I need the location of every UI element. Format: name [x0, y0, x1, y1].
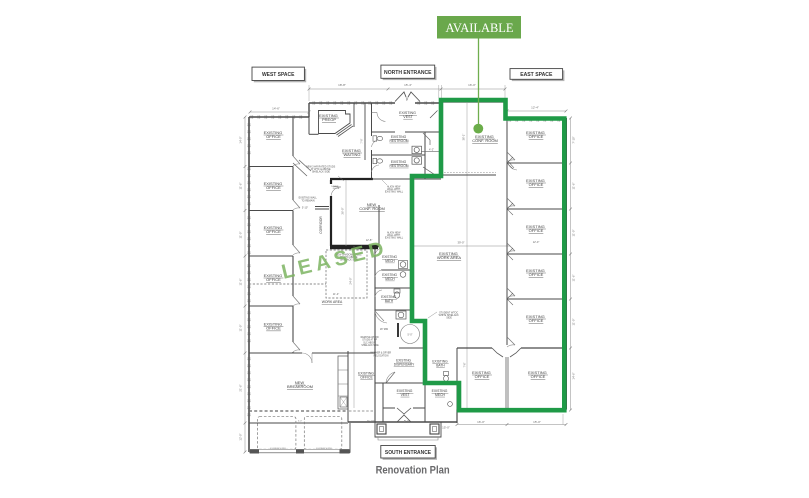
svg-text:15'-4": 15'-4": [404, 83, 412, 87]
svg-text:11'-0": 11'-0": [239, 232, 243, 239]
svg-text:EXISTING WORK AREA: EXISTING WORK AREA: [437, 251, 462, 260]
svg-text:18'-8": 18'-8": [338, 83, 346, 87]
svg-text:11'-4": 11'-4": [333, 292, 339, 296]
svg-text:EAST SPACE: EAST SPACE: [520, 72, 553, 78]
svg-text:EXISTING OFFICE: EXISTING OFFICE: [358, 372, 375, 380]
svg-text:5'-0": 5'-0": [404, 419, 410, 423]
svg-text:12'-0": 12'-0": [239, 433, 243, 440]
svg-text:11'-0": 11'-0": [572, 230, 576, 237]
svg-text:7'-10": 7'-10": [572, 136, 576, 143]
svg-text:11'-0": 11'-0": [572, 319, 576, 326]
svg-text:AVAILABLE: AVAILABLE: [446, 21, 514, 35]
svg-text:EXISTING OFFICE: EXISTING OFFICE: [264, 130, 284, 139]
svg-text:15'-0": 15'-0": [533, 420, 541, 424]
svg-text:16'-0": 16'-0": [477, 420, 485, 424]
svg-text:EXISTING WAITING: EXISTING WAITING: [342, 148, 362, 157]
svg-text:EXISTING OFFICE: EXISTING OFFICE: [472, 370, 492, 379]
svg-text:11'-6": 11'-6": [239, 279, 243, 286]
svg-text:9'-10": 9'-10": [367, 419, 375, 423]
svg-text:5'-0": 5'-0": [298, 421, 303, 423]
svg-text:12'-4": 12'-4": [531, 106, 539, 110]
svg-text:14'-6": 14'-6": [572, 372, 576, 379]
svg-text:4'-2": 4'-2": [429, 149, 434, 152]
svg-text:7'-0": 7'-0": [360, 138, 364, 143]
svg-text:EXISTING OFFICE: EXISTING OFFICE: [264, 321, 284, 330]
svg-text:39'-0": 39'-0": [457, 241, 464, 245]
svg-text:NORTH ENTRANCE: NORTH ENTRANCE: [384, 70, 432, 76]
svg-text:EXISTING OFFICE: EXISTING OFFICE: [526, 224, 546, 233]
svg-text:CORRIDOR: CORRIDOR: [319, 216, 323, 234]
svg-text:36'-0": 36'-0": [341, 207, 345, 214]
svg-text:12'-0": 12'-0": [533, 240, 540, 244]
svg-text:EXISTING OFFICE: EXISTING OFFICE: [264, 273, 284, 282]
svg-text:14'-6": 14'-6": [272, 107, 280, 111]
svg-text:4X4 BENCH DN5: 4X4 BENCH DN5: [316, 448, 333, 450]
svg-text:NEW DOOR: NEW DOOR: [333, 186, 340, 190]
svg-text:15'-0": 15'-0": [442, 426, 450, 430]
svg-text:16'-0": 16'-0": [468, 83, 476, 87]
svg-text:4X4 BENCH DN5: 4X4 BENCH DN5: [270, 448, 287, 450]
svg-text:EXISTING OFFICE: EXISTING OFFICE: [526, 268, 546, 277]
svg-text:EXISTING OFFICE: EXISTING OFFICE: [526, 314, 546, 323]
svg-text:5'-10": 5'-10": [302, 207, 308, 210]
svg-text:36'-2": 36'-2": [462, 134, 466, 141]
svg-text:EXISTING OFFICE: EXISTING OFFICE: [526, 130, 546, 139]
svg-text:21'-6": 21'-6": [239, 384, 243, 391]
svg-text:SOUTH ENTRANCE: SOUTH ENTRANCE: [385, 450, 431, 456]
svg-text:WEST SPACE: WEST SPACE: [262, 72, 295, 78]
svg-text:5'-0": 5'-0": [408, 334, 413, 337]
svg-text:11'-6": 11'-6": [572, 183, 576, 190]
svg-text:EXISTING OFFICE: EXISTING OFFICE: [528, 370, 548, 379]
svg-text:EXISTING OFFICE: EXISTING OFFICE: [526, 178, 546, 187]
svg-text:7'-6": 7'-6": [464, 362, 467, 367]
svg-text:EXISTING OFFICE: EXISTING OFFICE: [264, 181, 284, 190]
svg-text:11'-6": 11'-6": [239, 183, 243, 190]
svg-text:EXISTING RESTROOM: EXISTING RESTROOM: [389, 160, 408, 168]
svg-text:11'-0": 11'-0": [239, 325, 243, 332]
svg-text:18" MIN: 18" MIN: [380, 329, 389, 331]
svg-text:24'-0": 24'-0": [349, 277, 353, 284]
svg-text:Renovation Plan: Renovation Plan: [376, 465, 450, 477]
svg-text:WORK AREA: WORK AREA: [322, 300, 343, 304]
svg-text:EXISTING CONF. ROOM: EXISTING CONF. ROOM: [472, 134, 498, 143]
svg-text:REMOVE WOOD STUDS AT RP SLC AB: REMOVE WOOD STUDS AT RP SLC ABOVE SHIELA…: [361, 337, 380, 347]
svg-text:14'-0": 14'-0": [239, 136, 243, 143]
svg-text:EXISTING RESTROOM: EXISTING RESTROOM: [389, 135, 408, 143]
svg-text:EXISTING PREOP: EXISTING PREOP: [319, 113, 339, 122]
svg-text:11'-6": 11'-6": [572, 275, 576, 282]
svg-text:EXISTING OFFICE: EXISTING OFFICE: [264, 225, 284, 234]
